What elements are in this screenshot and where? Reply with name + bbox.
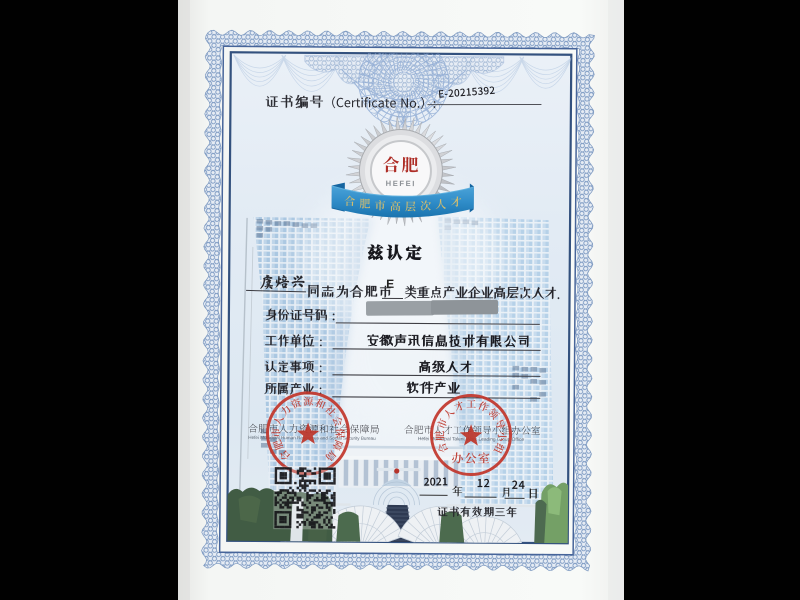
svg-text:E: E [386, 277, 394, 291]
svg-text:HEFEI: HEFEI [386, 179, 416, 188]
